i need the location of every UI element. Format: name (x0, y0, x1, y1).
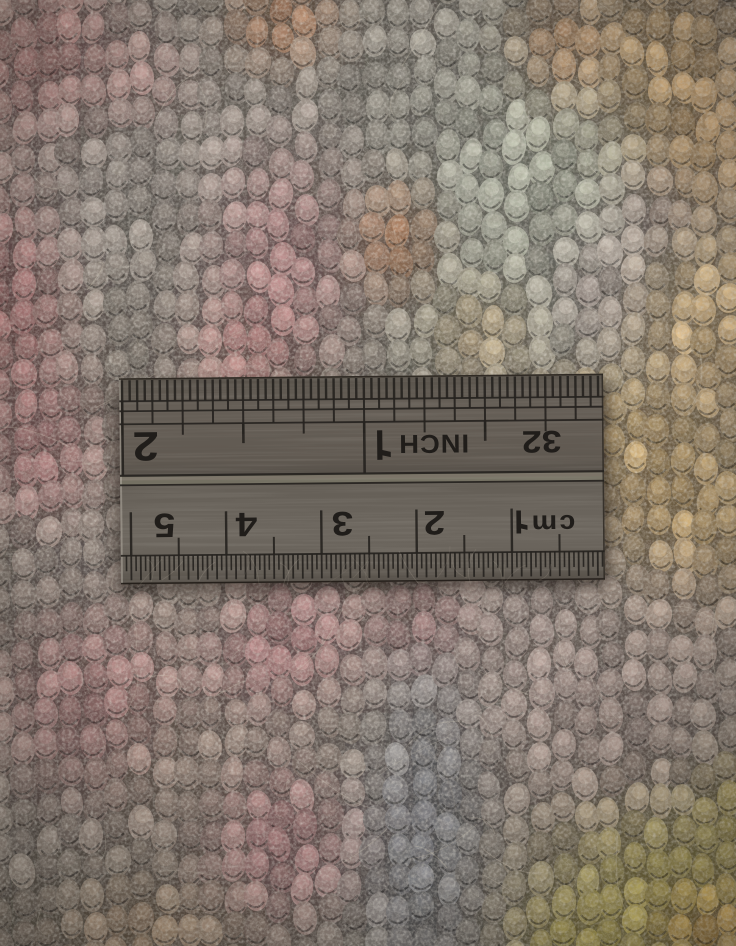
svg-text:2: 2 (423, 504, 445, 542)
svg-text:2: 2 (132, 423, 159, 469)
svg-text:4: 4 (235, 505, 258, 543)
svg-text:3: 3 (331, 504, 353, 542)
svg-text:INCH: INCH (398, 429, 469, 459)
svg-text:5: 5 (153, 506, 175, 544)
svg-text:32: 32 (522, 423, 562, 458)
svg-text:cm: cm (529, 509, 575, 539)
